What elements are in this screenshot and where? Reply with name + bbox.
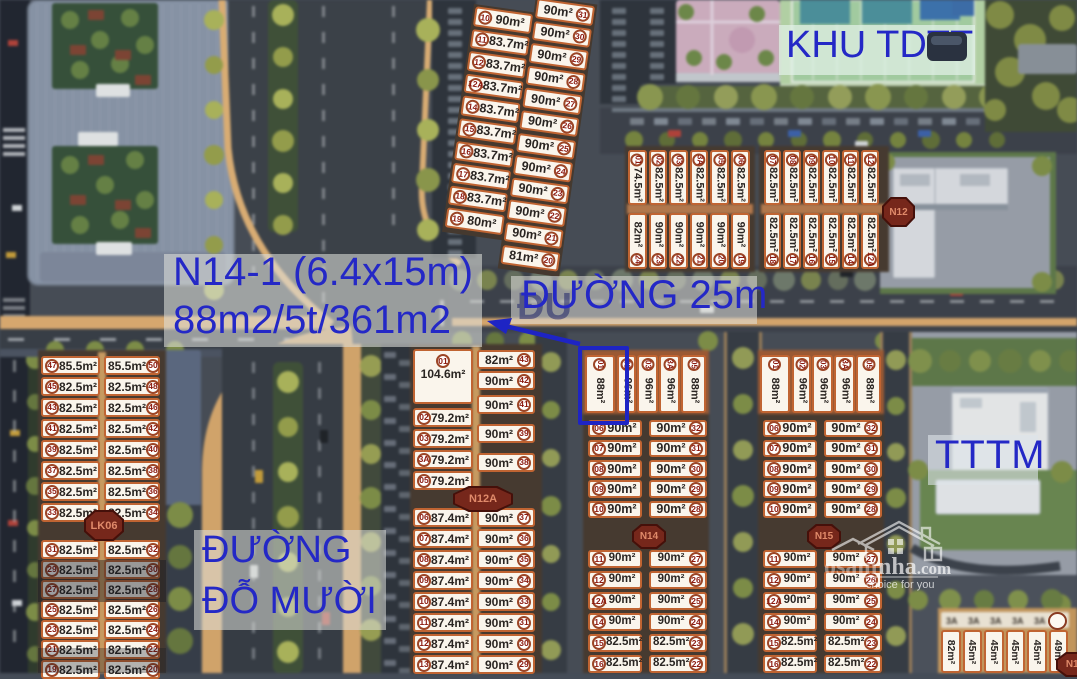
svg-text:osain: osain [824, 554, 877, 580]
svg-text:choice for you: choice for you [866, 579, 934, 591]
